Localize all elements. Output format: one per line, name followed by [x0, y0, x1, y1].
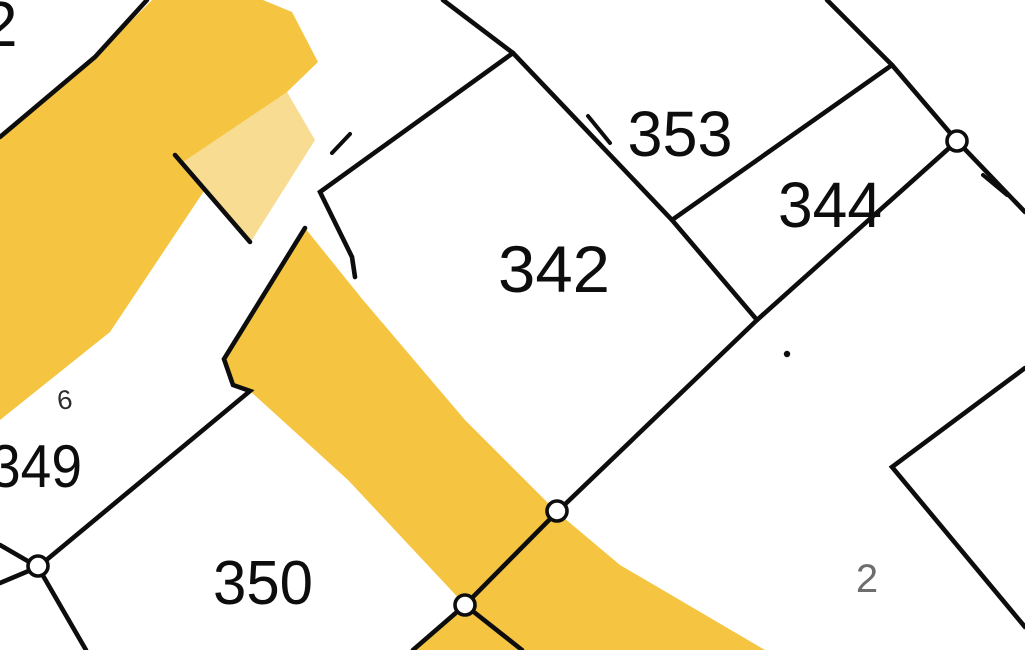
- parcel-label-small-2: 2: [856, 557, 878, 601]
- map-viewport[interactable]: 235334434234935062: [0, 0, 1025, 650]
- parcel-label-353: 353: [628, 98, 733, 170]
- boundary-point-lower: [455, 595, 475, 615]
- boundary-point-north-east: [947, 131, 967, 151]
- cadastral-map-canvas[interactable]: 235334434234935062: [0, 0, 1025, 650]
- boundary-point-center: [547, 501, 567, 521]
- parcel-label-top-left-2: 2: [0, 0, 18, 60]
- parcel-label-349: 349: [0, 433, 82, 500]
- point-marker-344-south: [784, 351, 790, 357]
- boundary-point-south-west: [28, 556, 48, 576]
- parcel-label-342: 342: [498, 232, 610, 306]
- parcel-label-344: 344: [778, 169, 882, 241]
- parcel-label-350: 350: [213, 549, 313, 618]
